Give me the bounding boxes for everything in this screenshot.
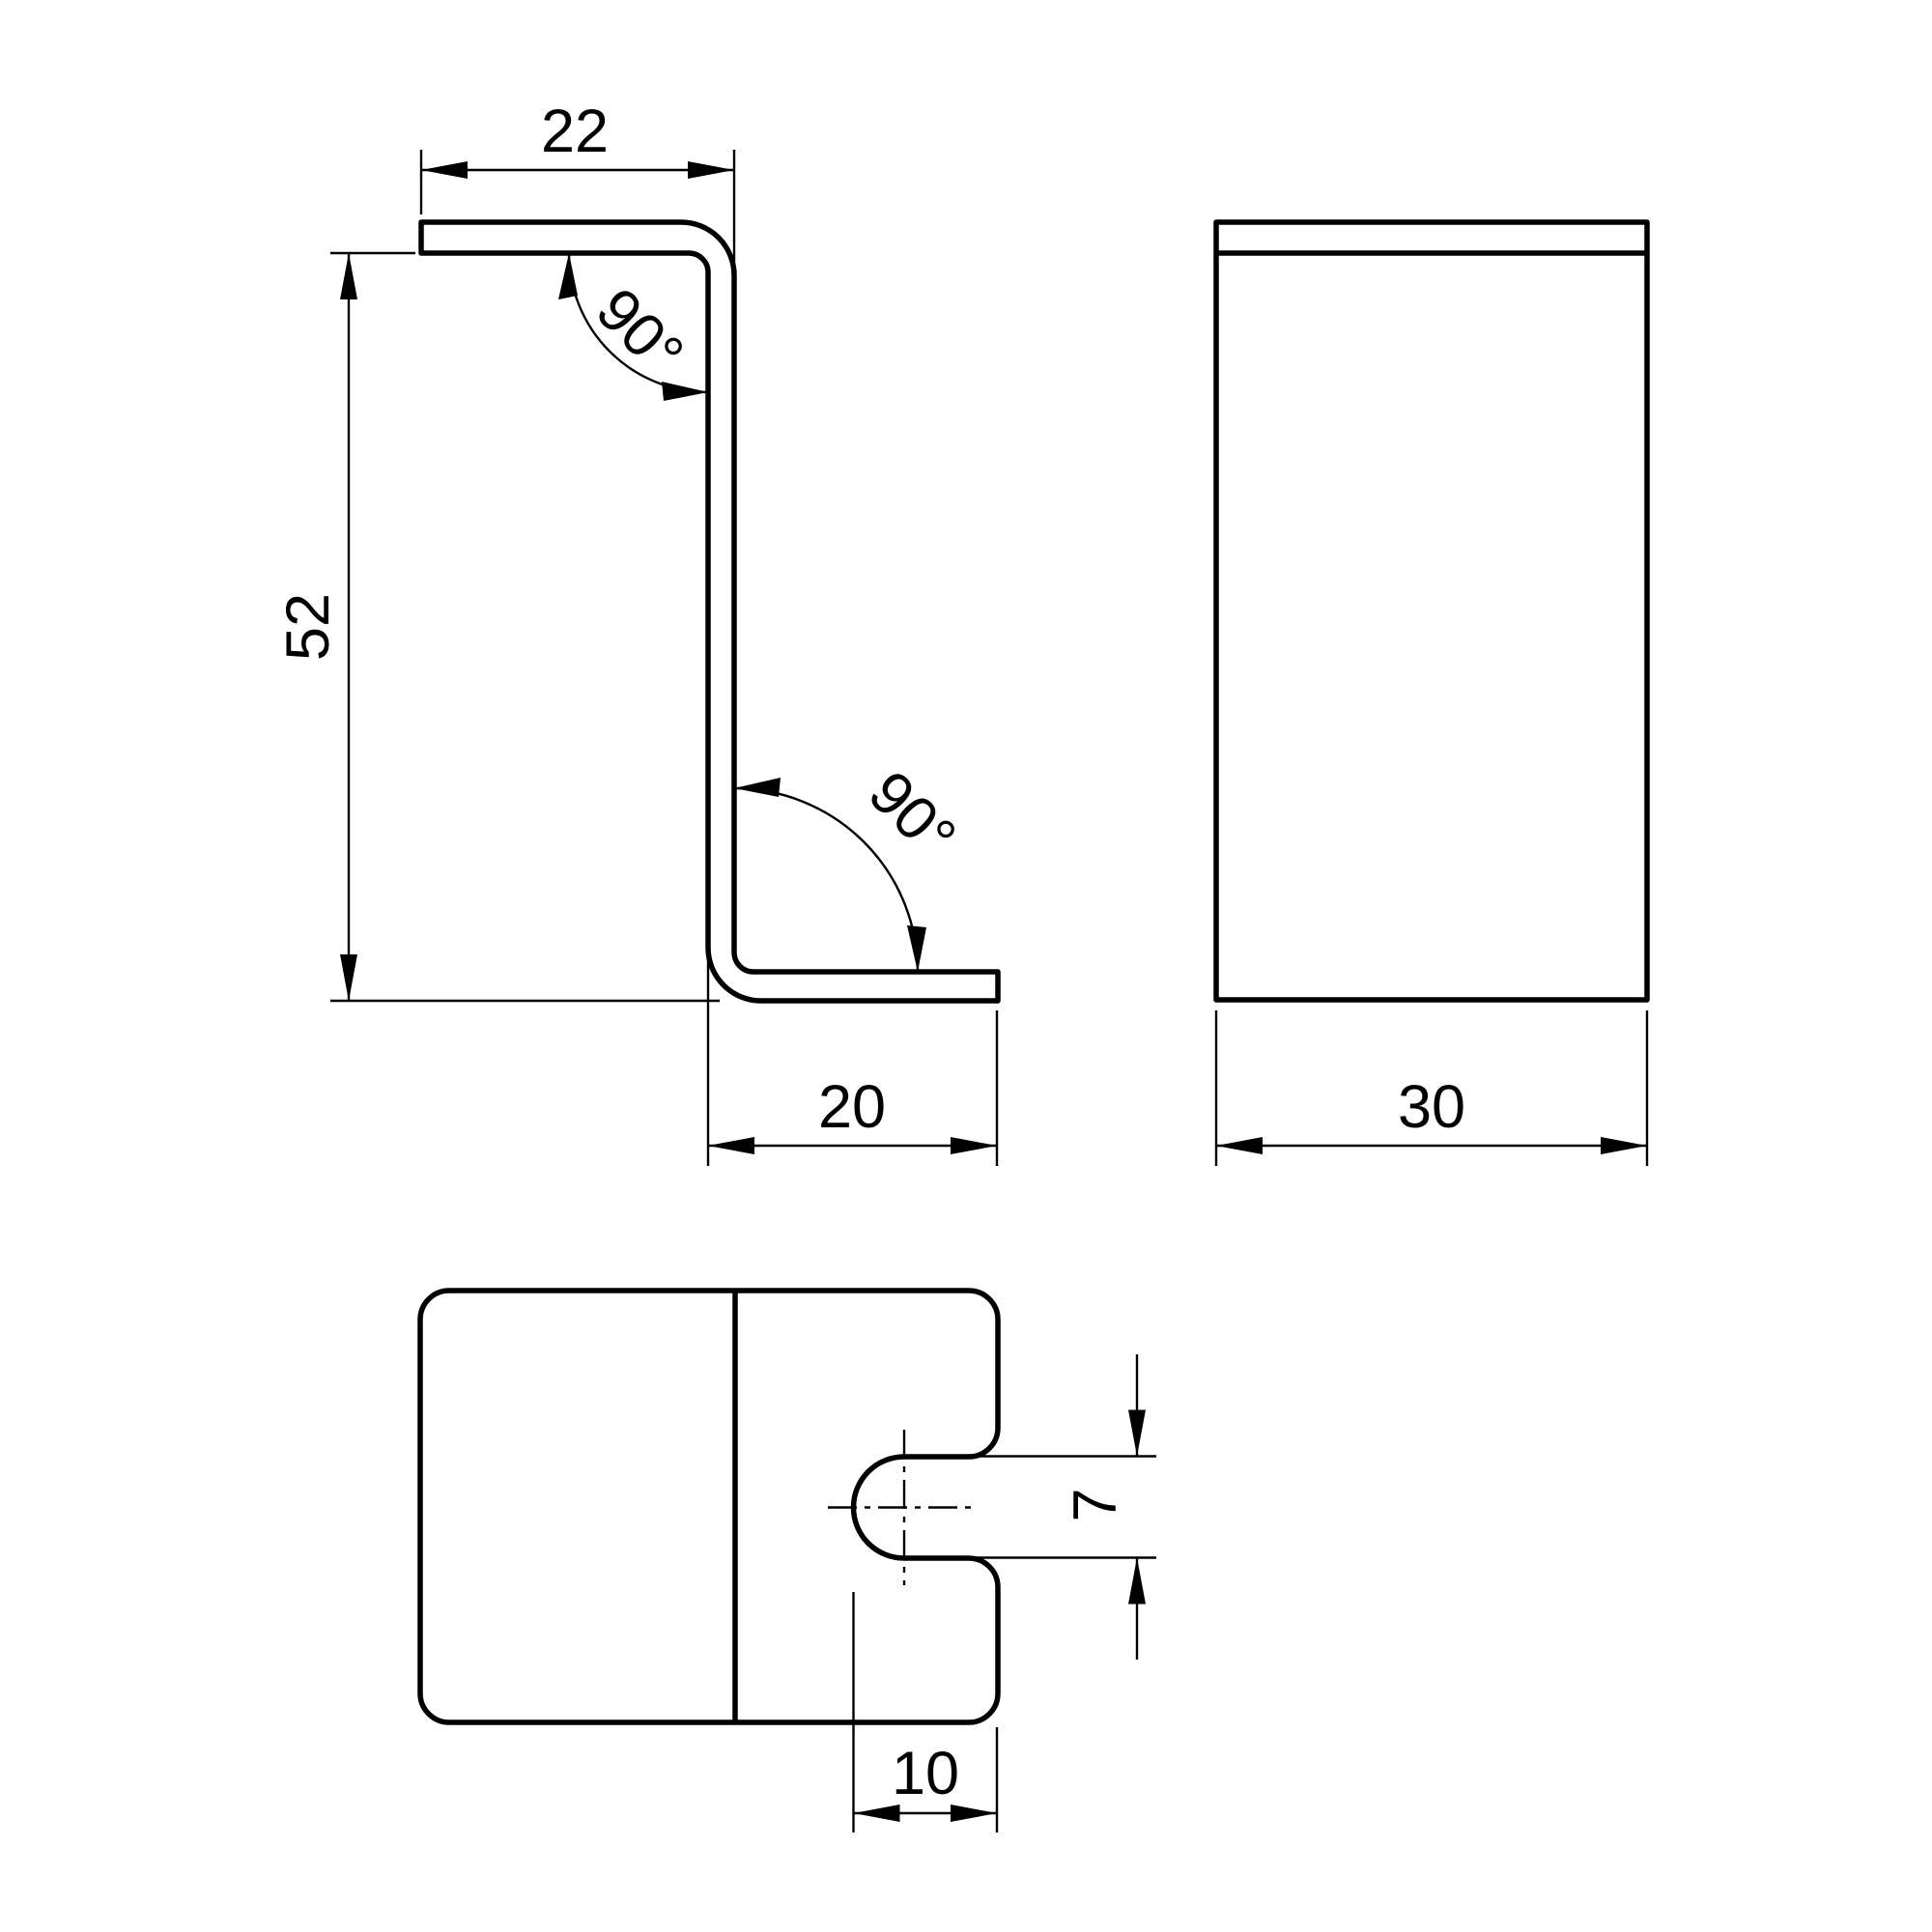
- dimension-text-20: 20: [818, 1073, 886, 1141]
- technical-drawing: 22 52 90° 9: [0, 0, 1932, 1932]
- dimension-text-30: 30: [1398, 1073, 1465, 1141]
- dimension-text-7: 7: [1062, 1488, 1129, 1521]
- sheet-background: [0, 0, 1932, 1932]
- dimension-text-52: 52: [274, 593, 342, 661]
- drawing-sheet: 22 52 90° 9: [0, 0, 1932, 1932]
- dimension-text-22: 22: [541, 98, 609, 165]
- dimension-text-10: 10: [892, 1740, 959, 1807]
